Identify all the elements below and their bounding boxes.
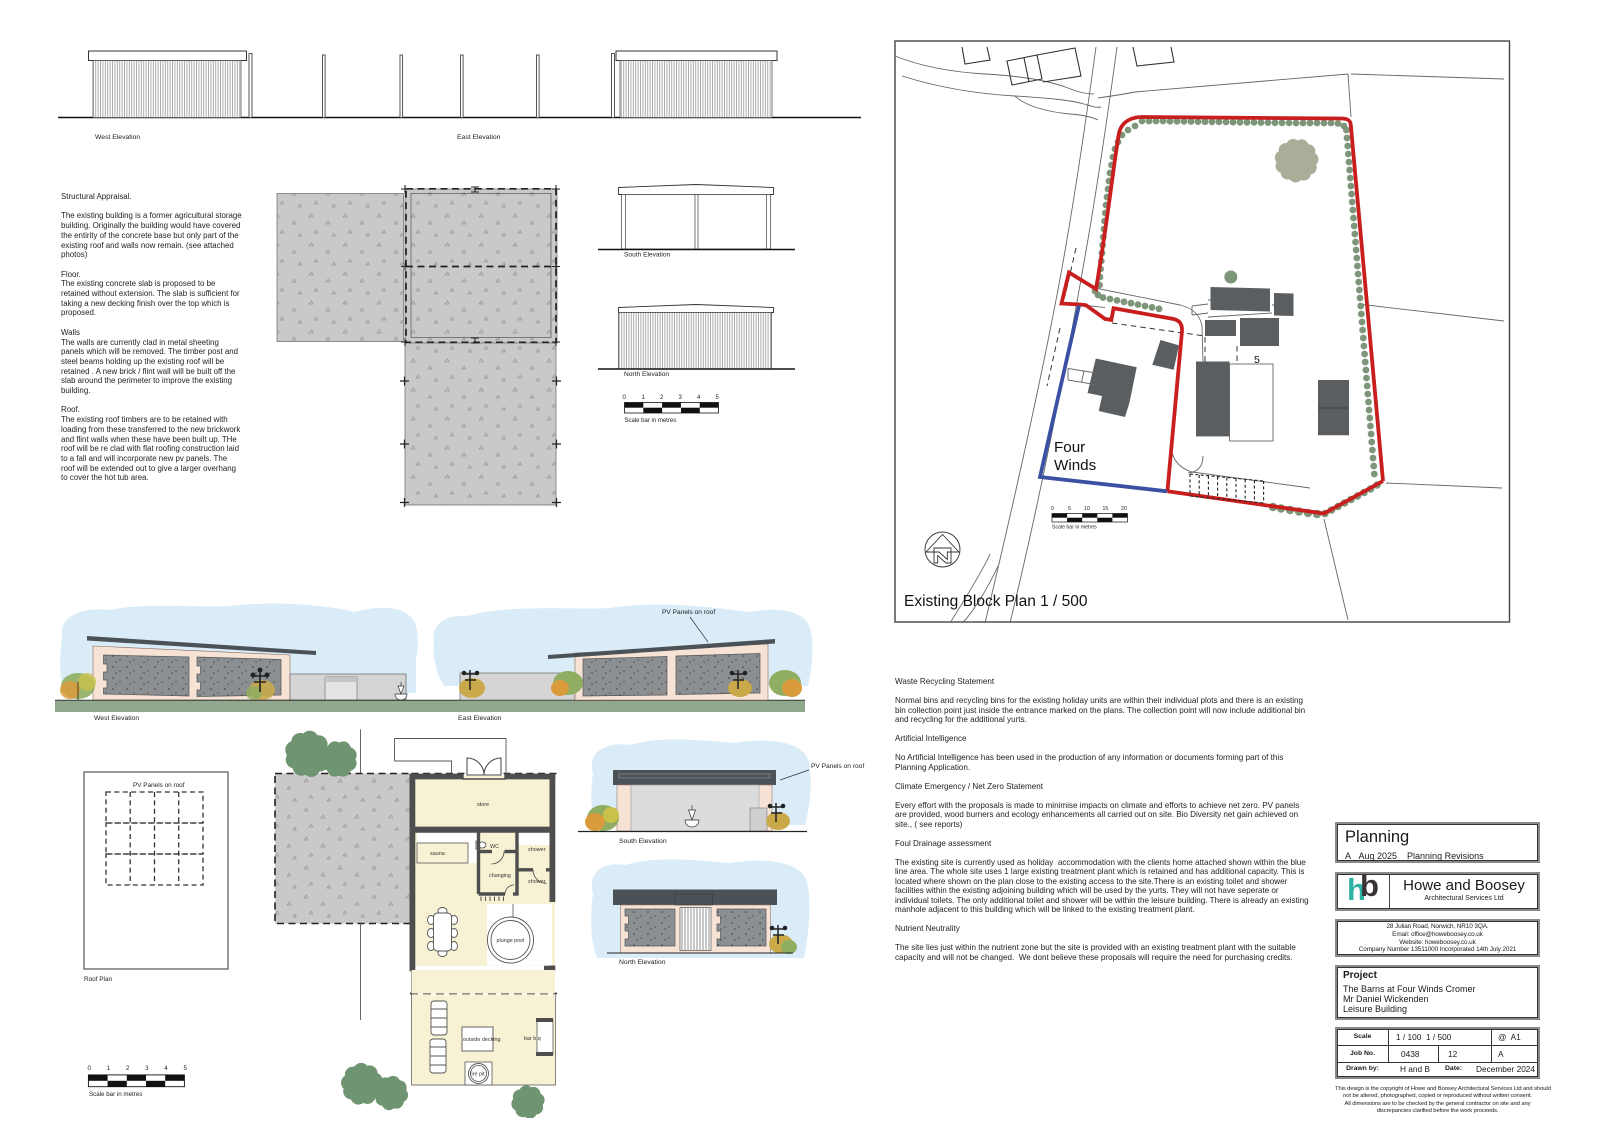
svg-text:10: 10	[1084, 506, 1090, 512]
svg-text:Existing Block Plan 1 / 500: Existing Block Plan 1 / 500	[904, 593, 1088, 610]
svg-text:4: 4	[164, 1065, 168, 1072]
svg-text:Scale bar in metres: Scale bar in metres	[625, 418, 677, 424]
svg-text:changing: changing	[489, 873, 511, 879]
svg-text:1: 1	[642, 395, 646, 401]
svg-text:shower: shower	[528, 879, 546, 885]
svg-text:0: 0	[1051, 506, 1054, 512]
svg-text:5: 5	[1254, 354, 1260, 366]
svg-text:5: 5	[1068, 506, 1071, 512]
svg-text:1: 1	[107, 1065, 111, 1072]
svg-text:4: 4	[697, 395, 701, 401]
svg-text:PV Panels on roof: PV Panels on roof	[133, 782, 185, 789]
svg-text:Scale bar in metres: Scale bar in metres	[89, 1091, 142, 1098]
svg-text:shower: shower	[528, 847, 546, 853]
svg-text:WC: WC	[490, 844, 499, 850]
svg-text:Four: Four	[1054, 439, 1085, 456]
svg-text:North Elevation: North Elevation	[624, 371, 669, 378]
svg-text:2: 2	[126, 1065, 130, 1072]
svg-text:West Elevation: West Elevation	[94, 715, 139, 722]
svg-text:Winds: Winds	[1054, 457, 1097, 474]
svg-text:North Elevation: North Elevation	[619, 959, 666, 966]
svg-text:0: 0	[88, 1065, 92, 1072]
svg-text:plunge pool: plunge pool	[497, 938, 525, 944]
svg-text:PV Panels on roof: PV Panels on roof	[811, 763, 864, 770]
svg-text:5: 5	[184, 1065, 188, 1072]
svg-text:fire pit: fire pit	[470, 1072, 485, 1078]
svg-text:bar b q: bar b q	[524, 1036, 541, 1042]
svg-text:3: 3	[145, 1065, 149, 1072]
svg-text:PV Panels on roof: PV Panels on roof	[662, 609, 715, 616]
svg-text:20: 20	[1121, 506, 1127, 512]
svg-text:outside decking: outside decking	[463, 1037, 500, 1043]
svg-text:Scale bar in metres: Scale bar in metres	[1052, 525, 1097, 531]
svg-text:Roof Plan: Roof Plan	[84, 976, 113, 983]
svg-text:sauna: sauna	[430, 851, 445, 857]
svg-text:0: 0	[623, 395, 627, 401]
svg-text:East Elevation: East Elevation	[457, 134, 501, 141]
svg-text:store: store	[477, 802, 489, 808]
svg-text:15: 15	[1103, 506, 1109, 512]
svg-text:West Elevation: West Elevation	[95, 134, 140, 141]
svg-text:5: 5	[716, 395, 720, 401]
svg-text:2: 2	[660, 395, 664, 401]
svg-text:3: 3	[679, 395, 683, 401]
svg-text:South Elevation: South Elevation	[624, 252, 671, 259]
svg-text:South Elevation: South Elevation	[619, 838, 667, 845]
